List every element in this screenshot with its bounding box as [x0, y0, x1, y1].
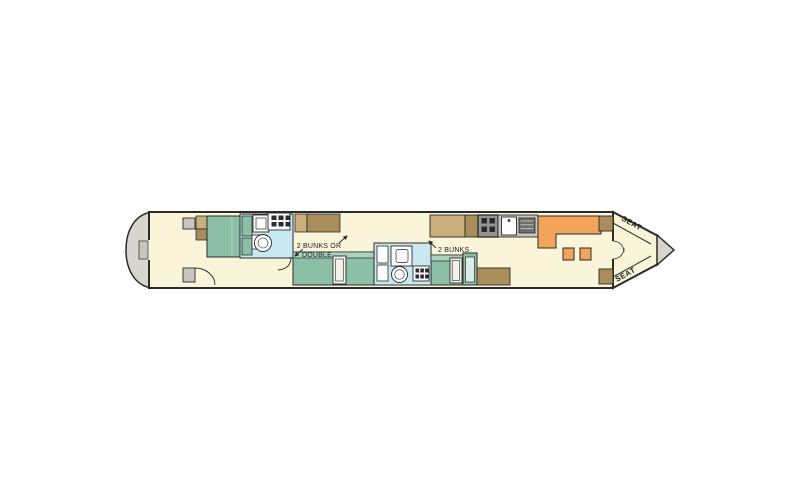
bow-locker: [599, 269, 613, 284]
narrowboat-floorplan: 2 BUNKS OR DOUBLE 2 BUNKS SEAT SEAT: [125, 210, 675, 290]
wardrobe: [295, 214, 340, 232]
bath2-cabinet: [377, 265, 388, 281]
bath1-cabinet: [242, 216, 252, 236]
bath2-cabinet: [377, 246, 388, 263]
faucet: [508, 219, 511, 222]
bow-locker: [599, 216, 613, 231]
floorplan-drawing: 2 BUNKS OR DOUBLE 2 BUNKS SEAT SEAT: [125, 210, 675, 290]
sink-grid-2: [413, 266, 429, 281]
stool: [580, 248, 591, 260]
sink-unit: [498, 215, 538, 237]
stool: [563, 248, 574, 260]
label-bunks-or-double-line1: 2 BUNKS OR: [297, 243, 341, 250]
bath1-cabinet: [242, 238, 252, 255]
shower-grid-1: [268, 213, 291, 230]
bedside-locker: [196, 216, 207, 240]
double-bed: [207, 216, 240, 257]
toilet-2: [392, 267, 408, 283]
stern-step: [139, 241, 148, 259]
bunk-door: [333, 256, 346, 284]
stove: [478, 215, 498, 237]
shower-2: [391, 246, 412, 266]
bunk-door: [450, 258, 462, 283]
toilet-1: [252, 235, 272, 252]
aft-bunks: [431, 255, 463, 285]
floorplan-canvas: 2 BUNKS OR DOUBLE 2 BUNKS SEAT SEAT: [0, 0, 800, 500]
drainer: [519, 218, 535, 233]
galley-bench: [477, 268, 510, 285]
vanity-1: [253, 215, 269, 232]
bathroom-2: [374, 243, 431, 285]
label-bunks-or-double-line2: DOUBLE: [302, 252, 332, 259]
label-2-bunks: 2 BUNKS: [438, 247, 469, 254]
bow-tip: [657, 235, 674, 265]
galley-cabinet: [463, 253, 477, 285]
galley-counter: [430, 215, 478, 237]
